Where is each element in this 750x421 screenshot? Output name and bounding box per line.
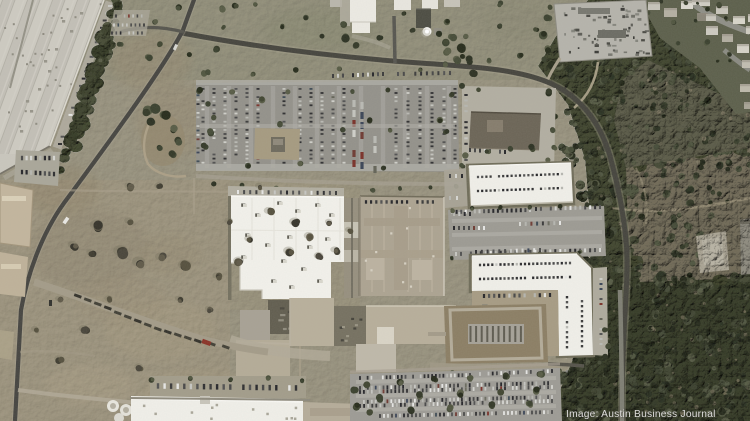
svg-text:Image: Austin Business Journal: Image: Austin Business Journal <box>566 409 716 420</box>
